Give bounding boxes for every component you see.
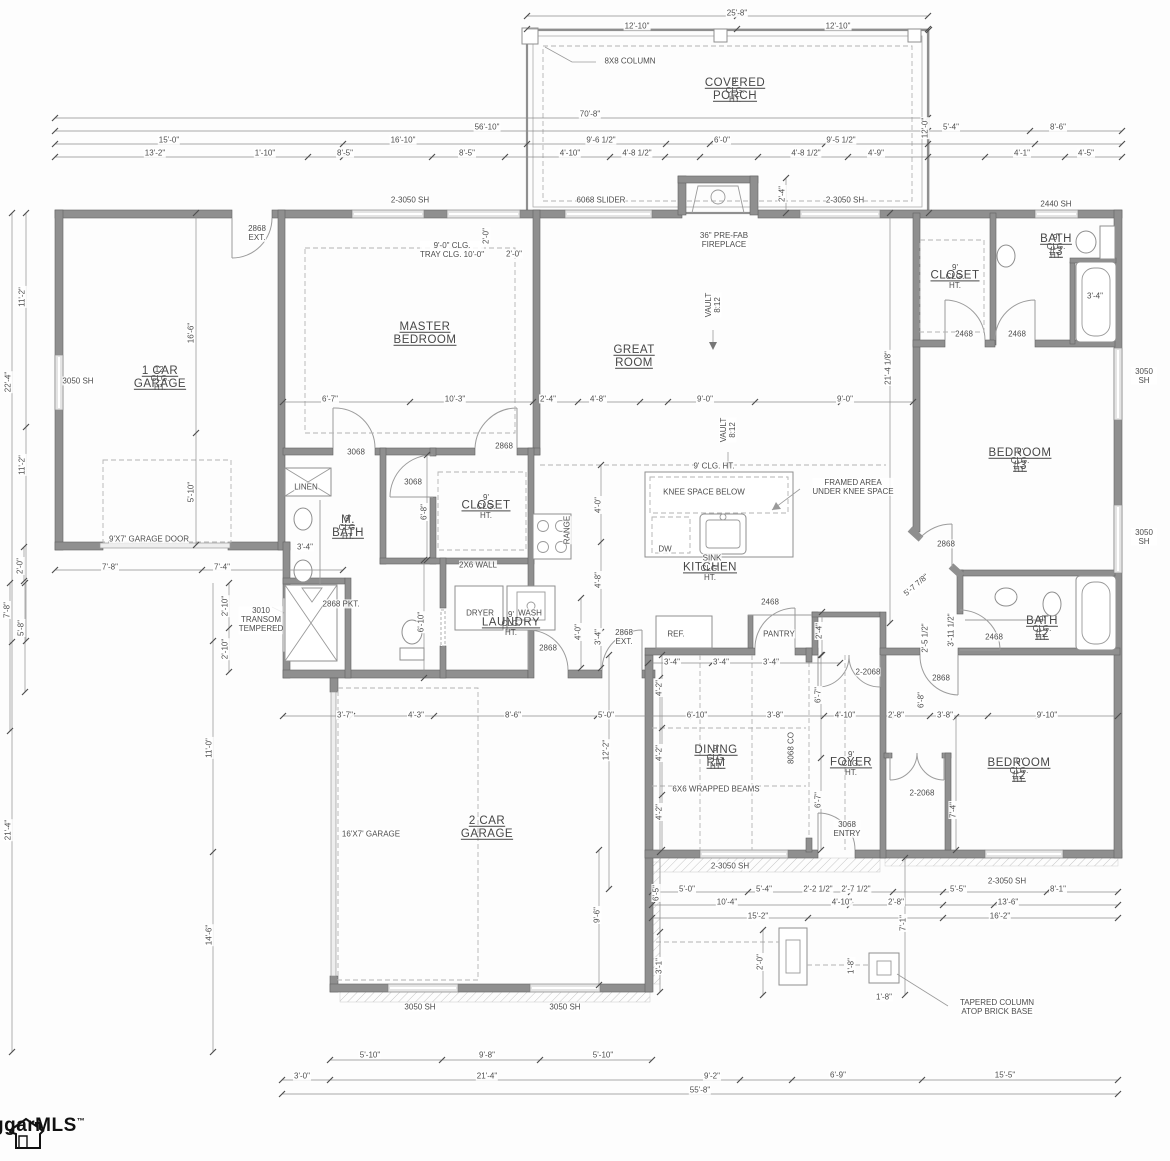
note-label: 3050 SH (1131, 528, 1157, 546)
note-label: 3010 TRANSOM TEMPERED (239, 606, 283, 634)
note-label: 3050 SH (1131, 367, 1157, 385)
dim-label: 6'-7" (813, 791, 822, 809)
note-label: 3050 SH (62, 376, 93, 385)
room-title: GREAT ROOM (613, 344, 654, 370)
note-label: 3068 (347, 447, 365, 456)
dim-label: 6'-0" (713, 135, 731, 144)
floor-plan-drawing (0, 0, 1170, 1161)
note-label: 2-3050 SH (826, 195, 864, 204)
dim-label: 8'-1" (1049, 884, 1067, 893)
brick-base-column (779, 928, 807, 985)
dim-label: 2'-7 1/2" (840, 884, 871, 893)
dim-label: 2'-10" (220, 638, 229, 660)
dim-label: 6'-10" (686, 710, 708, 719)
dim-label: 12'-0" (920, 117, 929, 139)
note-label: 2868 (937, 539, 955, 548)
dim-label: 7'-8" (2, 601, 11, 619)
dim-label: 12'-2" (601, 739, 610, 761)
note-label: 3068 ENTRY (834, 820, 861, 838)
house-icon (6, 1115, 46, 1151)
room-ceiling-note: 9' CLG. HT. (842, 750, 861, 778)
note-label: 2868 EXT. (615, 628, 633, 646)
room-ceiling-note: 9' CLG. HT. (1047, 233, 1066, 261)
note-label: DRYER (466, 608, 494, 617)
note-label: 2-2068 (910, 788, 935, 797)
toilet-icon (1043, 592, 1061, 616)
mls-logo: ggarMLS™ (6, 1115, 85, 1137)
covered-porch-outline (522, 28, 928, 213)
dim-label: 3'-4" (593, 628, 602, 646)
dim-label: 3'-4" (663, 657, 681, 666)
dim-label: 1'-10" (254, 148, 276, 157)
note-label: 2-3050 SH (711, 861, 749, 870)
note-label: 2-3050 SH (391, 195, 429, 204)
dim-label: 4'-2" (654, 679, 663, 697)
dim-label: 15'-0" (158, 135, 180, 144)
note-label: KNEE SPACE BELOW (663, 487, 745, 496)
note-label: 8068 CO (786, 732, 795, 764)
note-label: 6X6 WRAPPED BEAMS (672, 784, 759, 793)
note-label: 2868 PKT. (323, 599, 360, 608)
porch-column-icon (522, 28, 538, 44)
note-label: 3050 SH (404, 1002, 435, 1011)
dim-label: 1'-8" (875, 992, 893, 1001)
dim-label: 5'-10" (592, 1050, 614, 1059)
walls (55, 176, 1122, 992)
dim-label: 3'-4" (296, 542, 314, 551)
dim-label: 4'-3" (407, 710, 425, 719)
note-label: 2468 (761, 597, 779, 606)
porch-column-icon (714, 29, 727, 42)
dim-label: 2'-4" (814, 622, 823, 640)
dim-label: 5'-4" (942, 122, 960, 131)
note-label: 6068 SLIDER (577, 195, 626, 204)
note-label: 3068 (404, 477, 422, 486)
dim-label: 10'-4" (716, 897, 738, 906)
dim-label: 4'-10" (559, 148, 581, 157)
floor-plan-canvas: COVERED PORCH9' CLG. HT.1 CAR GARAGE12' … (0, 0, 1170, 1161)
dim-label: 2'-10" (220, 595, 229, 617)
dim-label: 10'-3" (444, 394, 466, 403)
room-title: MASTER BEDROOM (394, 321, 457, 347)
dim-label: 56'-10" (474, 122, 501, 131)
dim-label: 3'-1" (654, 957, 663, 975)
dim-label: 3'-8" (766, 710, 784, 719)
note-label: REF. (667, 629, 684, 638)
dim-label: 5'-10" (186, 481, 195, 503)
dim-label: 3'-7" (336, 710, 354, 719)
note-label: 2-3050 SH (988, 876, 1026, 885)
room-ceiling-note: 9' CLG. HT. (1010, 757, 1029, 785)
dim-label: 16'-10" (390, 135, 417, 144)
porch-column-icon (908, 29, 921, 42)
dim-label: 4'-8" (589, 394, 607, 403)
dim-label: 6'-7" (813, 686, 822, 704)
dim-label: 2'-4" (539, 394, 557, 403)
note-label: 9'X7' GARAGE DOOR (109, 534, 189, 543)
dim-label: 1'-8" (846, 957, 855, 975)
room-ceiling-note: 9' CLG. HT. (339, 514, 358, 542)
dim-label: 13'-2" (144, 148, 166, 157)
note-label: WASH (518, 608, 542, 617)
dim-label: 5'-4" (755, 884, 773, 893)
dim-label: 3'-0" (293, 1071, 311, 1080)
dim-label: 3'-4" (1086, 291, 1104, 300)
dim-label: 70'-8" (579, 109, 601, 118)
dim-label: 2'-0" (505, 249, 523, 258)
dim-label: 7'-8" (101, 562, 119, 571)
dim-label: 4'-9" (867, 148, 885, 157)
room-title: 2 CAR GARAGE (461, 815, 513, 841)
dim-label: 3'-4" (762, 657, 780, 666)
toilet-icon (1076, 231, 1096, 253)
note-label: 8X8 COLUMN (604, 56, 655, 65)
dim-label: 2'-0" (755, 953, 764, 971)
note-label: 2868 EXT. (248, 224, 266, 242)
note-label: 9' CLG. HT. (693, 461, 734, 470)
dim-label: 14'-6" (204, 924, 213, 946)
dim-label: 4'-8 1/2" (621, 148, 652, 157)
dim-label: 9'-5 1/2" (825, 135, 856, 144)
note-label: 3050 SH (549, 1002, 580, 1011)
dim-label: 5'-8" (16, 619, 25, 637)
note-label: 2468 (985, 632, 1003, 641)
dim-label: 8'-6" (1049, 122, 1067, 131)
dim-label: 4'-2" (654, 744, 663, 762)
bathroom-sink-icon (997, 245, 1015, 267)
dim-label: 6'-5" (651, 884, 660, 902)
note-label: 2468 (1008, 329, 1026, 338)
note-label: 2X6 WALL (459, 560, 497, 569)
dim-label: 2'-0" (481, 227, 490, 245)
note-label: DW (658, 544, 671, 553)
note-label: RANGE (562, 516, 571, 544)
bathroom-sink-icon (995, 588, 1017, 606)
note-label: 2468 (955, 329, 973, 338)
dim-label: 21'-4 1/8" (883, 350, 892, 386)
dim-label: 4'-8 1/2" (790, 148, 821, 157)
dim-label: 5'-0" (597, 710, 615, 719)
note-label: VAULT 8:12 (719, 418, 737, 443)
dim-label: 3'-4" (712, 657, 730, 666)
dim-label: 11'-2" (17, 454, 26, 476)
dim-label: 5'-10" (359, 1050, 381, 1059)
dim-label: 4'-2" (654, 803, 663, 821)
dim-label: 3'-8" (936, 710, 954, 719)
dim-label: 8'-5" (336, 148, 354, 157)
note-label: 2-2068 (856, 667, 881, 676)
dim-label: 15'-5" (994, 1070, 1016, 1079)
dim-label: 6'-10" (416, 611, 425, 633)
dim-label: 9'-2" (703, 1071, 721, 1080)
dim-label: 2'-8" (887, 897, 905, 906)
dim-label: 2'-0" (15, 557, 24, 575)
note-label: VAULT 8:12 (704, 293, 722, 318)
dim-label: 13'-6" (997, 897, 1019, 906)
dim-label: 6'-8" (916, 691, 925, 709)
dim-label: 21'-4" (3, 819, 12, 841)
dim-label: 21'-4" (476, 1071, 498, 1080)
dim-label: 6'-7" (321, 394, 339, 403)
dim-label: 4'-8" (593, 571, 602, 589)
dim-label: 11'-2" (17, 286, 26, 308)
room-ceiling-note: 9' CLG. HT. (1011, 447, 1030, 475)
dim-label: 4'-1" (1013, 148, 1031, 157)
dim-label: 6'-8" (419, 503, 428, 521)
room-ceiling-note: 9' CLG. HT. (726, 77, 745, 105)
dim-label: 9'-6" (592, 906, 601, 924)
note-label: SINK (703, 553, 722, 562)
bathroom-sink-icon (294, 508, 312, 530)
dim-label: 3'-11 1/2" (946, 612, 955, 647)
dim-label: 2'-5 1/2" (920, 622, 929, 653)
dim-label: 9'-0" (836, 394, 854, 403)
room-ceiling-note: 9' CLG. HT. (707, 744, 726, 772)
note-label: LINEN (294, 482, 318, 491)
dim-label: 4'-0" (593, 496, 602, 514)
note-label: TAPERED COLUMN ATOP BRICK BASE (960, 998, 1034, 1016)
bathroom-sink-icon (294, 560, 312, 582)
dim-label: 55'-8" (689, 1085, 711, 1094)
logo-tm: ™ (77, 1117, 86, 1126)
dim-label: 4'-10" (831, 897, 853, 906)
room-ceiling-note: 9' CLG. HT. (946, 263, 965, 291)
dim-label: 4'-10" (834, 710, 856, 719)
dim-label: 8'-6" (504, 710, 522, 719)
note-label: 2440 SH (1040, 199, 1071, 208)
dim-label: 9'-8" (478, 1050, 496, 1059)
note-label: 2868 (495, 441, 513, 450)
note-label: 16'X7' GARAGE (342, 829, 400, 838)
dim-label: 12'-10" (624, 21, 651, 30)
room-ceiling-note: 9' CLG. HT. (1033, 615, 1052, 643)
dim-label: 16'-6" (186, 322, 195, 344)
note-label: 2868 (932, 673, 950, 682)
dim-label: 9'-0" (696, 394, 714, 403)
tapered-column (869, 953, 899, 983)
dim-label: 4'-0" (573, 623, 582, 641)
dim-label: 15'-2" (747, 911, 769, 920)
dim-label: 9'-10" (1036, 710, 1058, 719)
note-label: 36" PRE-FAB FIREPLACE (700, 231, 748, 249)
dim-label: 6'-9" (829, 1070, 847, 1079)
dim-label: 11'-0" (204, 737, 213, 759)
room-ceiling-note: 12' CLG. HT. (151, 365, 170, 393)
dim-label: 16'-2" (989, 911, 1011, 920)
dim-label: 2'-4" (777, 185, 786, 203)
note-label: 9'-0" CLG. TRAY CLG. 10'-0" (420, 241, 484, 259)
dim-label: 2'-8" (887, 710, 905, 719)
dim-label: 5'-5" (949, 884, 967, 893)
dim-label: 4'-5" (1077, 148, 1095, 157)
dim-label: 2'-2 1/2" (802, 884, 833, 893)
room-ceiling-note: 9' CLG. HT. (477, 493, 496, 521)
note-label: FRAMED AREA UNDER KNEE SPACE (812, 478, 893, 496)
dim-label: 12'-10" (825, 21, 852, 30)
dim-label: 7'-4" (948, 801, 957, 819)
note-label: 2868 (539, 643, 557, 652)
dim-label: 5'-0" (678, 884, 696, 893)
dim-label: 7'-1" (898, 914, 907, 932)
dim-label: 25'-8" (726, 8, 748, 17)
dim-label: 9'-6 1/2" (585, 135, 616, 144)
dim-label: 22'-4" (3, 371, 12, 393)
dim-label: 8'-5" (458, 148, 476, 157)
dim-label: 7'-4" (213, 562, 231, 571)
note-label: PANTRY (763, 629, 795, 638)
